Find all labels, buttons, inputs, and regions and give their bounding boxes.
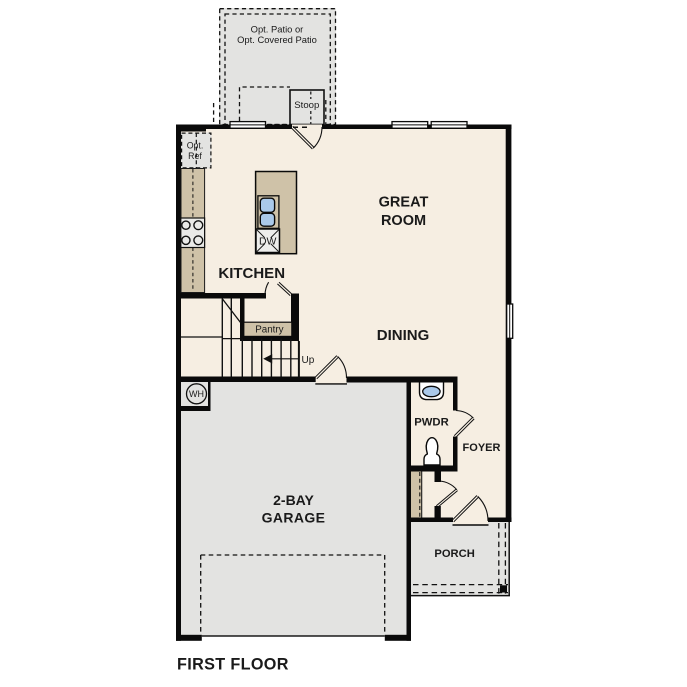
svg-text:WH: WH <box>189 389 204 399</box>
svg-text:GREAT: GREAT <box>379 195 429 211</box>
svg-text:Opt.: Opt. <box>187 140 204 150</box>
svg-text:ROOM: ROOM <box>381 213 426 229</box>
svg-text:GARAGE: GARAGE <box>262 510 326 526</box>
svg-text:2-BAY: 2-BAY <box>273 492 314 508</box>
svg-text:Up: Up <box>302 355 315 366</box>
svg-text:PORCH: PORCH <box>434 548 474 560</box>
svg-text:Stoop: Stoop <box>294 100 319 111</box>
svg-text:DINING: DINING <box>377 327 430 344</box>
svg-text:Pantry: Pantry <box>255 324 283 335</box>
svg-text:DW: DW <box>259 235 277 247</box>
svg-text:KITCHEN: KITCHEN <box>218 265 285 282</box>
svg-text:FIRST FLOOR: FIRST FLOOR <box>177 656 289 674</box>
svg-text:Ref: Ref <box>188 151 202 161</box>
svg-text:Opt. Patio or: Opt. Patio or <box>251 24 304 35</box>
svg-text:Opt. Covered Patio: Opt. Covered Patio <box>237 34 317 45</box>
svg-text:PWDR: PWDR <box>414 416 449 428</box>
svg-text:FOYER: FOYER <box>463 442 501 454</box>
